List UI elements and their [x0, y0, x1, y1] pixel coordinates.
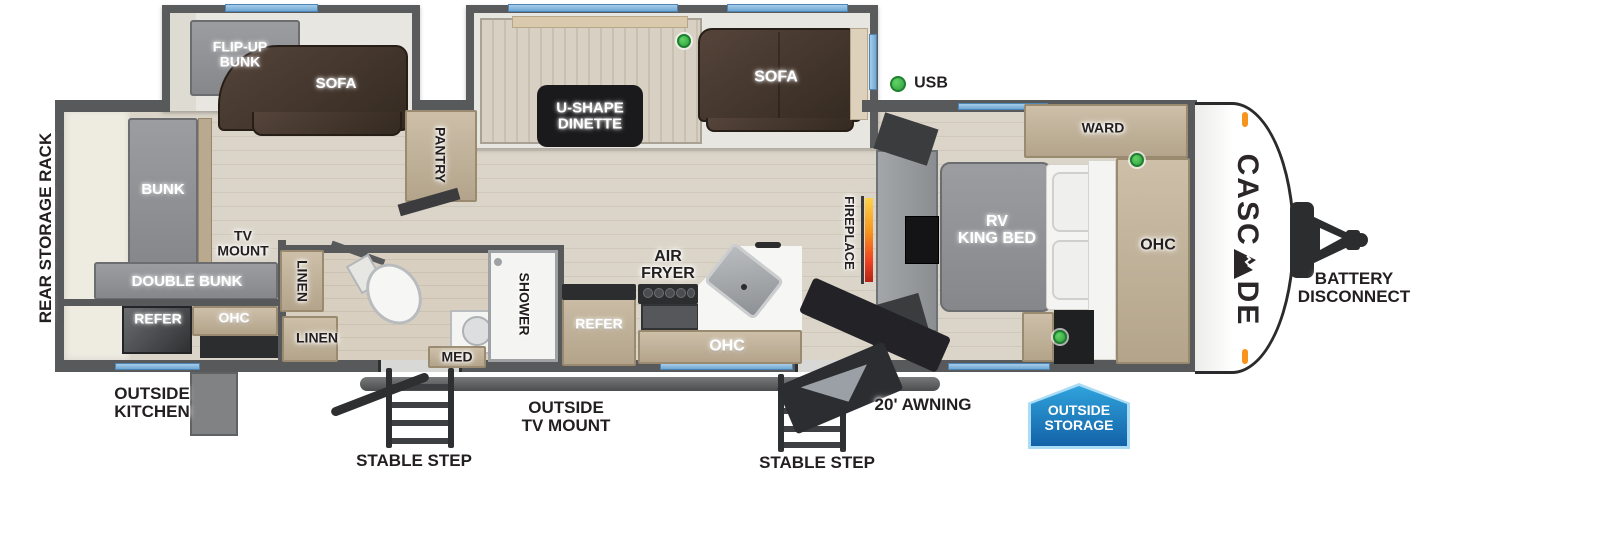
window-slide-dinette-2: [727, 4, 848, 12]
awning-label: 20' AWNING: [875, 396, 972, 414]
burner-2: [654, 288, 664, 298]
rear-sofa-base: [252, 112, 402, 136]
tv-screen: [905, 216, 939, 264]
air-fryer-label-line1: AIR: [641, 249, 695, 266]
wall-rear-end: [55, 100, 64, 372]
tv-mount-label-line2: MOUNT: [217, 243, 268, 258]
step-rail: [448, 368, 454, 448]
flip-up-bunk-label-line2: BUNK: [213, 54, 267, 69]
linen-lower-label: LINEN: [296, 331, 338, 346]
outside-kitchen-line2: KITCHEN: [114, 403, 190, 421]
bed-label-line1: RV: [958, 214, 1036, 231]
window-slide-dinette-side: [869, 34, 877, 90]
flip-up-bunk-label-line1: FLIP-UP: [213, 39, 267, 54]
burner-3: [665, 288, 675, 298]
tv-mount-label-line1: TV: [217, 228, 268, 243]
med-label: MED: [441, 350, 472, 365]
sofa-main-label: SOFA: [754, 70, 798, 87]
usb-port-dot-dinette: [677, 34, 691, 48]
wall-bunkroom-divider: [64, 299, 279, 306]
kitchen-ohc-label: OHC: [709, 339, 745, 356]
step-rung: [388, 420, 452, 426]
dinette-label-line1: U-SHAPE: [556, 100, 624, 116]
window-slide-rear: [225, 4, 318, 12]
bed-foot-bench: [1022, 312, 1054, 362]
outside-kitchen-tray: [190, 372, 238, 436]
burner-1: [643, 288, 653, 298]
sink-drain: [741, 284, 747, 290]
marker-light-top: [1242, 112, 1248, 127]
dinette-label-line2: DINETTE: [556, 116, 624, 132]
rear-ohc-label: OHC: [218, 311, 249, 326]
rear-storage-rack-label: REAR STORAGE RACK: [37, 133, 55, 323]
rear-refer-label: REFER: [134, 312, 181, 327]
step-rung: [780, 442, 842, 448]
fireplace-flame: [865, 198, 873, 282]
counter-handle: [755, 242, 781, 248]
outside-kitchen-line1: OUTSIDE: [114, 385, 190, 403]
double-bunk-label: DOUBLE BUNK: [132, 274, 243, 290]
window-slide-dinette-1: [508, 4, 678, 12]
shower-head: [494, 258, 502, 266]
outside-tv-mount-line1: OUTSIDE: [522, 399, 611, 417]
outside-storage-badge: OUTSIDE STORAGE: [1028, 383, 1130, 449]
mountain-icon: [1234, 249, 1260, 279]
window-bottom-rear: [115, 363, 200, 370]
window-bottom-kitchen: [660, 363, 793, 370]
sofa-rear-label: SOFA: [316, 76, 357, 92]
battery-disconnect-line2: DISCONNECT: [1298, 288, 1410, 306]
usb-port-dot-ward: [1130, 153, 1144, 167]
air-fryer-label-line2: FRYER: [641, 266, 695, 283]
battery-disconnect-line1: BATTERY: [1298, 270, 1410, 288]
usb-port-dot-bed: [1053, 330, 1067, 344]
step-rail: [386, 368, 392, 448]
ward-label: WARD: [1082, 121, 1125, 136]
rear-storage-wall: [64, 109, 130, 361]
shower-label: SHOWER: [517, 273, 532, 336]
bed-label-line2: KING BED: [958, 231, 1036, 248]
burner-4: [676, 288, 686, 298]
bedroom-overhead-cabinet: [1116, 158, 1190, 364]
dinette-valance: [512, 16, 688, 28]
wall-top-1: [55, 100, 170, 112]
outside-tv-mount-line2: TV MOUNT: [522, 417, 611, 435]
step-rung: [388, 438, 452, 444]
pantry-label: PANTRY: [433, 127, 448, 183]
fireplace-frame: [861, 196, 864, 284]
outside-storage-line2: STORAGE: [1028, 418, 1130, 433]
main-sofa-base: [706, 118, 854, 132]
stable-step-left-label: STABLE STEP: [356, 452, 472, 470]
air-fryer-unit: [641, 304, 699, 330]
outside-kitchen-griddle: [200, 336, 278, 358]
brand-part2: DE: [1230, 281, 1264, 327]
stable-step-right-label: STABLE STEP: [759, 454, 875, 472]
window-bottom-bedroom: [948, 363, 1050, 370]
marker-light-bottom: [1242, 349, 1248, 364]
brand-logo: CASC DE: [1227, 130, 1267, 350]
burner-5: [687, 288, 695, 298]
outside-storage-line1: OUTSIDE: [1028, 403, 1130, 418]
kitchen-refer-top: [562, 284, 636, 300]
floorplan-canvas: U-SHAPE DINETTE SOFA SOFA FLIP-UP BUNK B…: [0, 0, 1600, 536]
bedroom-ohc-label: OHC: [1140, 238, 1176, 255]
fireplace-label: FIREPLACE: [842, 196, 856, 270]
tv-mount-wall: [198, 118, 212, 266]
kitchen-refer-label: REFER: [575, 317, 622, 332]
linen-upper-label: LINEN: [295, 260, 310, 302]
usb-legend-dot: [890, 76, 906, 92]
bunk-label: BUNK: [141, 182, 184, 198]
usb-legend-label: USB: [914, 76, 948, 93]
brand-part1: CASC: [1230, 154, 1264, 247]
step-rung: [388, 402, 452, 408]
